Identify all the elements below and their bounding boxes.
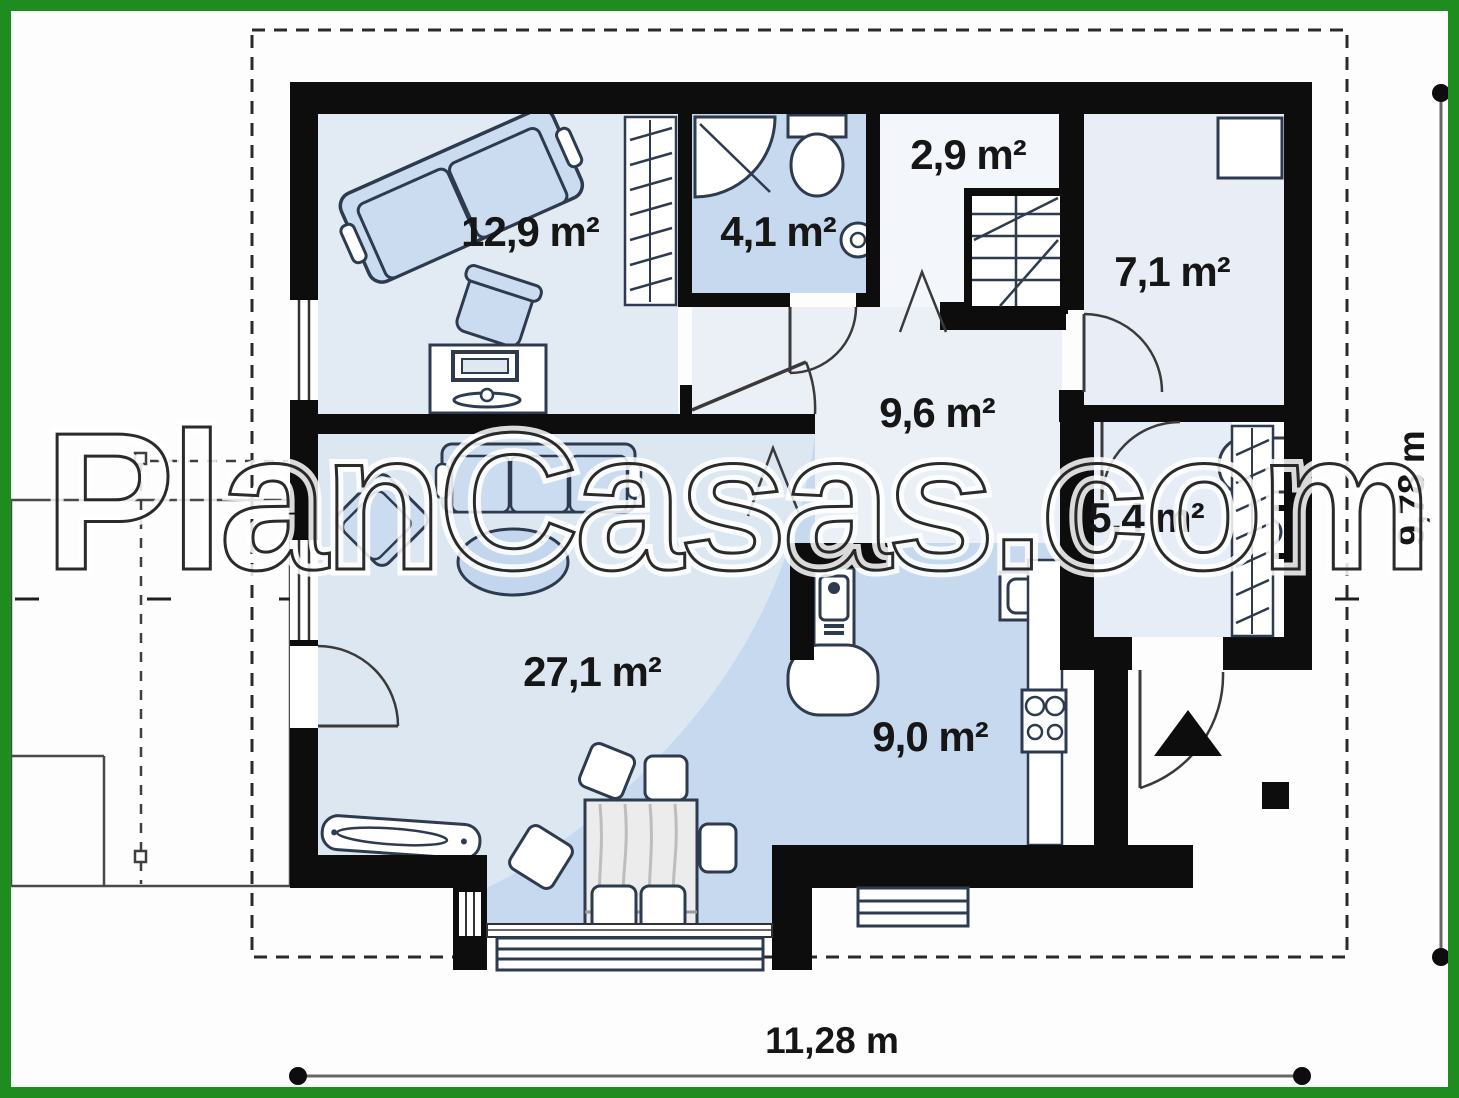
kitchen-back-steps <box>858 888 968 926</box>
utility-counter-icon <box>1218 118 1282 178</box>
bedroom-window <box>290 300 318 400</box>
coffee-table-icon <box>458 529 568 595</box>
bedroom-wardrobe-icon <box>625 117 676 305</box>
width-dimension-label: 11,28 m <box>765 1020 899 1062</box>
bedroom-area-label: 12,9 m² <box>461 208 599 256</box>
height-dimension-label: 9,78 m <box>1391 430 1433 545</box>
porch-steps <box>497 938 763 970</box>
floor-plan-drawing <box>0 0 1459 1098</box>
staircase-icon <box>968 192 1064 310</box>
utility-area-label: 7,1 m² <box>1114 248 1229 296</box>
floor-plan-page: 12,9 m² 4,1 m² 2,9 m² 7,1 m² 9,6 m² 5,4 … <box>0 0 1459 1098</box>
porch-side-window <box>459 892 481 936</box>
kitchen-island-sink-icon <box>814 568 854 646</box>
terrace-door-opening <box>290 646 318 728</box>
chimney-square-icon <box>1262 782 1289 809</box>
living-room-area-label: 27,1 m² <box>523 648 661 696</box>
desk-icon <box>430 345 546 413</box>
kitchen-area-label: 9,0 m² <box>872 713 987 761</box>
toilet-icon <box>788 115 846 196</box>
central-hall-area-label: 9,6 m² <box>879 389 994 437</box>
stair-hall-area-label: 2,9 m² <box>910 131 1025 179</box>
entry-hall-area-label: 5,4 m² <box>1088 494 1203 542</box>
bathroom-area-label: 4,1 m² <box>720 208 835 256</box>
hall-wardrobe-icon <box>1232 426 1273 636</box>
living-room-window <box>290 540 318 640</box>
stove-icon <box>1022 690 1066 752</box>
dining-bay-glazing <box>487 924 772 937</box>
shower-icon <box>695 117 775 197</box>
sofa-icon <box>436 444 641 512</box>
